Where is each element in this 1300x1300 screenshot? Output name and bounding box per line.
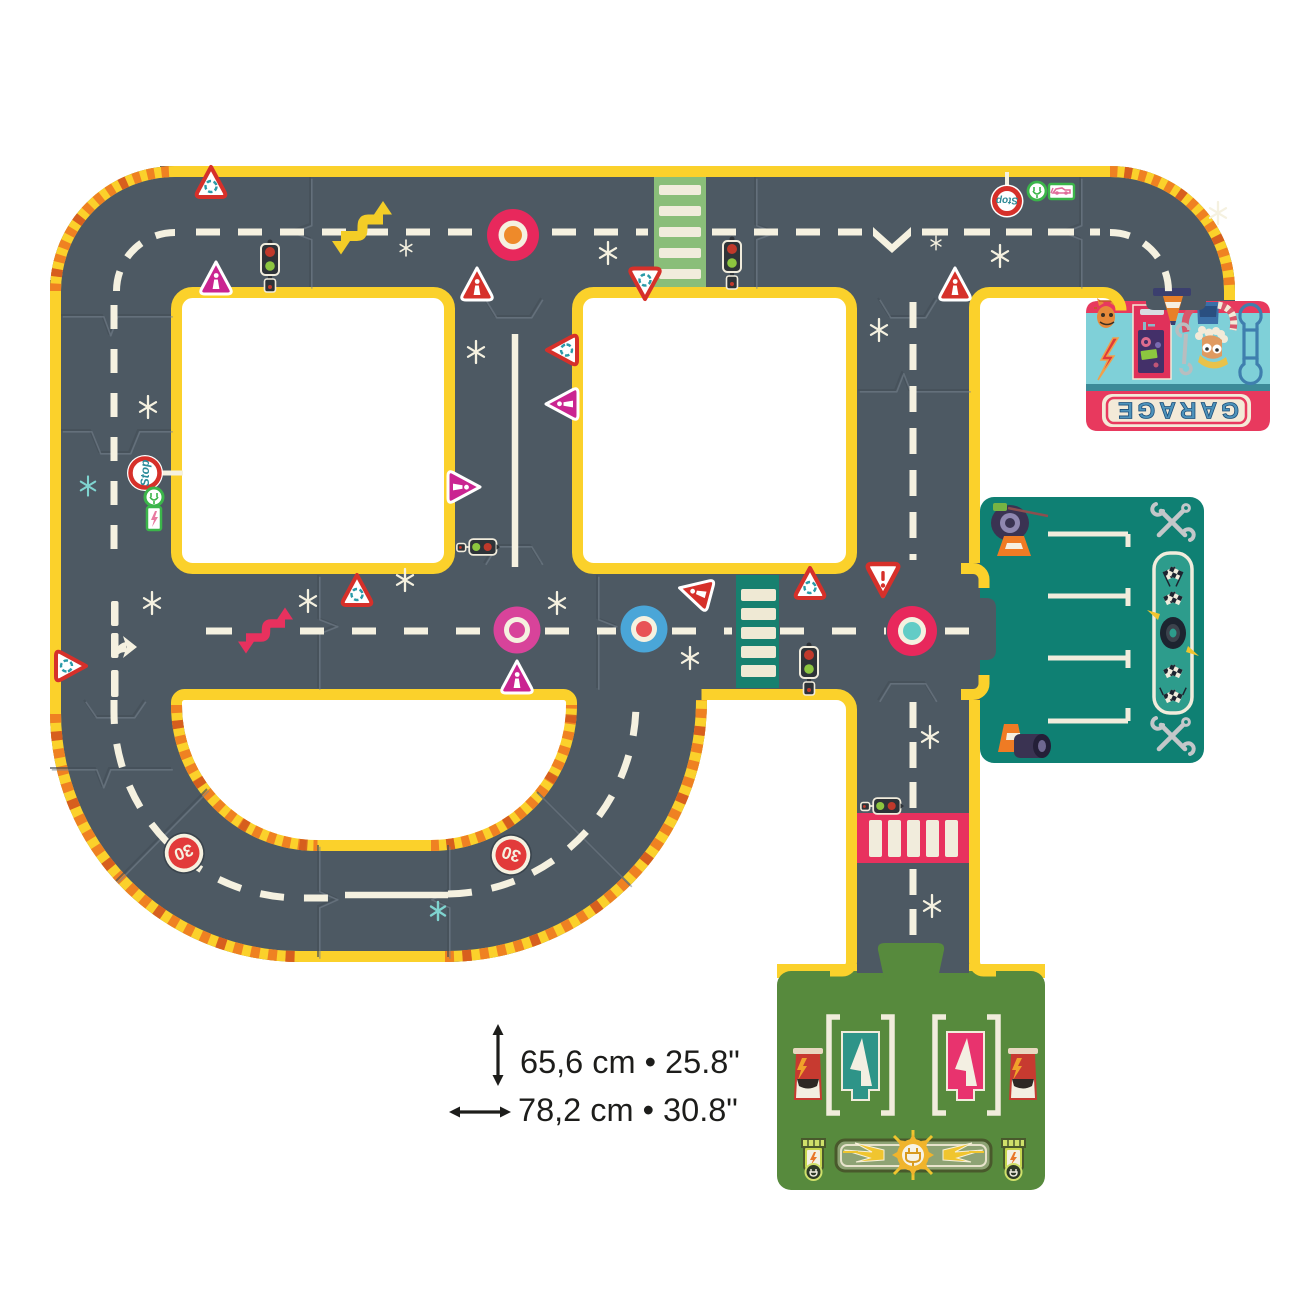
svg-text:GARAGE: GARAGE	[1114, 398, 1239, 424]
svg-text:78,2 cm • 30.8": 78,2 cm • 30.8"	[518, 1092, 738, 1128]
svg-text:Stop: Stop	[138, 460, 152, 487]
svg-text:65,6 cm • 25.8": 65,6 cm • 25.8"	[520, 1044, 740, 1080]
